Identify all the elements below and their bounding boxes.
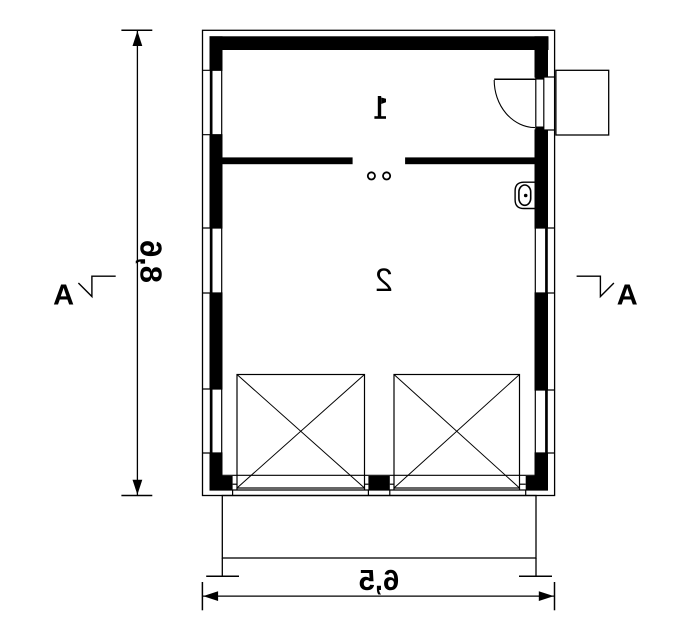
svg-text:6,5: 6,5 <box>359 565 399 597</box>
svg-text:A: A <box>617 280 638 312</box>
svg-text:2: 2 <box>375 262 393 298</box>
svg-text:8,6: 8,6 <box>134 240 169 283</box>
svg-text:A: A <box>53 280 74 312</box>
